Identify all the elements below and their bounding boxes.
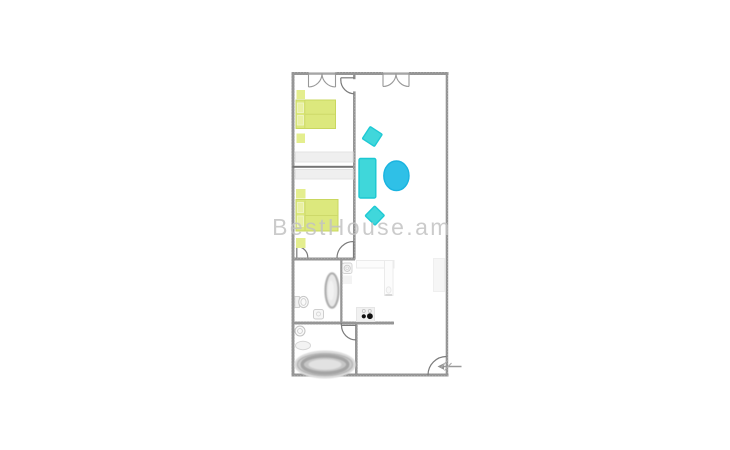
svg-text:BestHouse.am: BestHouse.am [272,214,452,240]
